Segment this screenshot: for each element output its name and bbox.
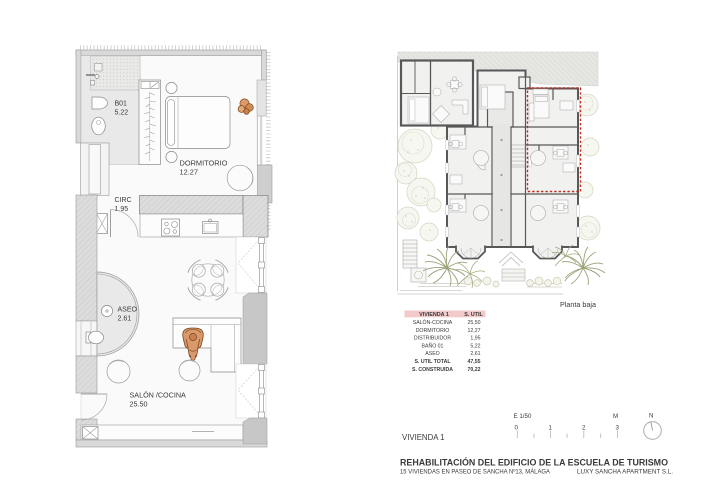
svg-text:BAÑO 01: BAÑO 01 xyxy=(422,342,444,349)
svg-text:DORMITORIO: DORMITORIO xyxy=(416,328,450,334)
svg-text:2: 2 xyxy=(582,425,586,432)
svg-text:SALÓN /COCINA: SALÓN /COCINA xyxy=(130,391,187,400)
svg-text:M: M xyxy=(613,413,618,420)
svg-text:12,27: 12,27 xyxy=(468,328,481,334)
svg-text:ASEO: ASEO xyxy=(425,351,439,357)
svg-text:B01: B01 xyxy=(115,101,128,108)
svg-text:CIRC: CIRC xyxy=(115,197,132,204)
svg-text:LUXY SANCHA APARTMENT S.L.: LUXY SANCHA APARTMENT S.L. xyxy=(577,469,673,476)
svg-text:25,50: 25,50 xyxy=(468,320,481,326)
svg-text:1: 1 xyxy=(549,425,553,432)
svg-text:5,22: 5,22 xyxy=(470,343,480,349)
svg-text:E 1/50: E 1/50 xyxy=(514,413,532,420)
svg-text:VIVIENDA 1: VIVIENDA 1 xyxy=(402,433,444,442)
svg-text:15 VIVIENDAS EN PASEO DE SANCH: 15 VIVIENDAS EN PASEO DE SANCHA Nº13, MÁ… xyxy=(400,469,550,476)
svg-text:5.22: 5.22 xyxy=(115,110,129,117)
svg-text:REHABILITACIÓN DEL EDIFICIO DE: REHABILITACIÓN DEL EDIFICIO DE LA ESCUEL… xyxy=(400,457,668,468)
svg-text:SALÓN-COCINA: SALÓN-COCINA xyxy=(413,319,453,326)
svg-text:3: 3 xyxy=(616,425,620,432)
svg-text:VIVIENDA 1: VIVIENDA 1 xyxy=(419,312,449,318)
svg-text:2.61: 2.61 xyxy=(118,316,132,323)
svg-text:47,55: 47,55 xyxy=(468,359,481,365)
svg-text:ASEO: ASEO xyxy=(118,307,138,314)
svg-text:1,95: 1,95 xyxy=(470,336,480,342)
svg-text:Planta baja: Planta baja xyxy=(560,300,596,309)
svg-text:70,22: 70,22 xyxy=(468,367,481,373)
svg-text:DISTRIBUIDOR: DISTRIBUIDOR xyxy=(414,336,451,342)
svg-text:S. CONSTRUIDA: S. CONSTRUIDA xyxy=(412,367,453,373)
svg-text:S. UTIL TOTAL: S. UTIL TOTAL xyxy=(414,359,451,365)
svg-text:12.27: 12.27 xyxy=(180,168,199,177)
svg-text:S. UTIL: S. UTIL xyxy=(464,312,483,318)
svg-text:25.50: 25.50 xyxy=(130,400,148,409)
svg-text:0: 0 xyxy=(515,425,519,432)
svg-text:N: N xyxy=(649,413,653,420)
svg-text:DORMITORIO: DORMITORIO xyxy=(180,159,228,168)
svg-text:2,61: 2,61 xyxy=(470,351,480,357)
